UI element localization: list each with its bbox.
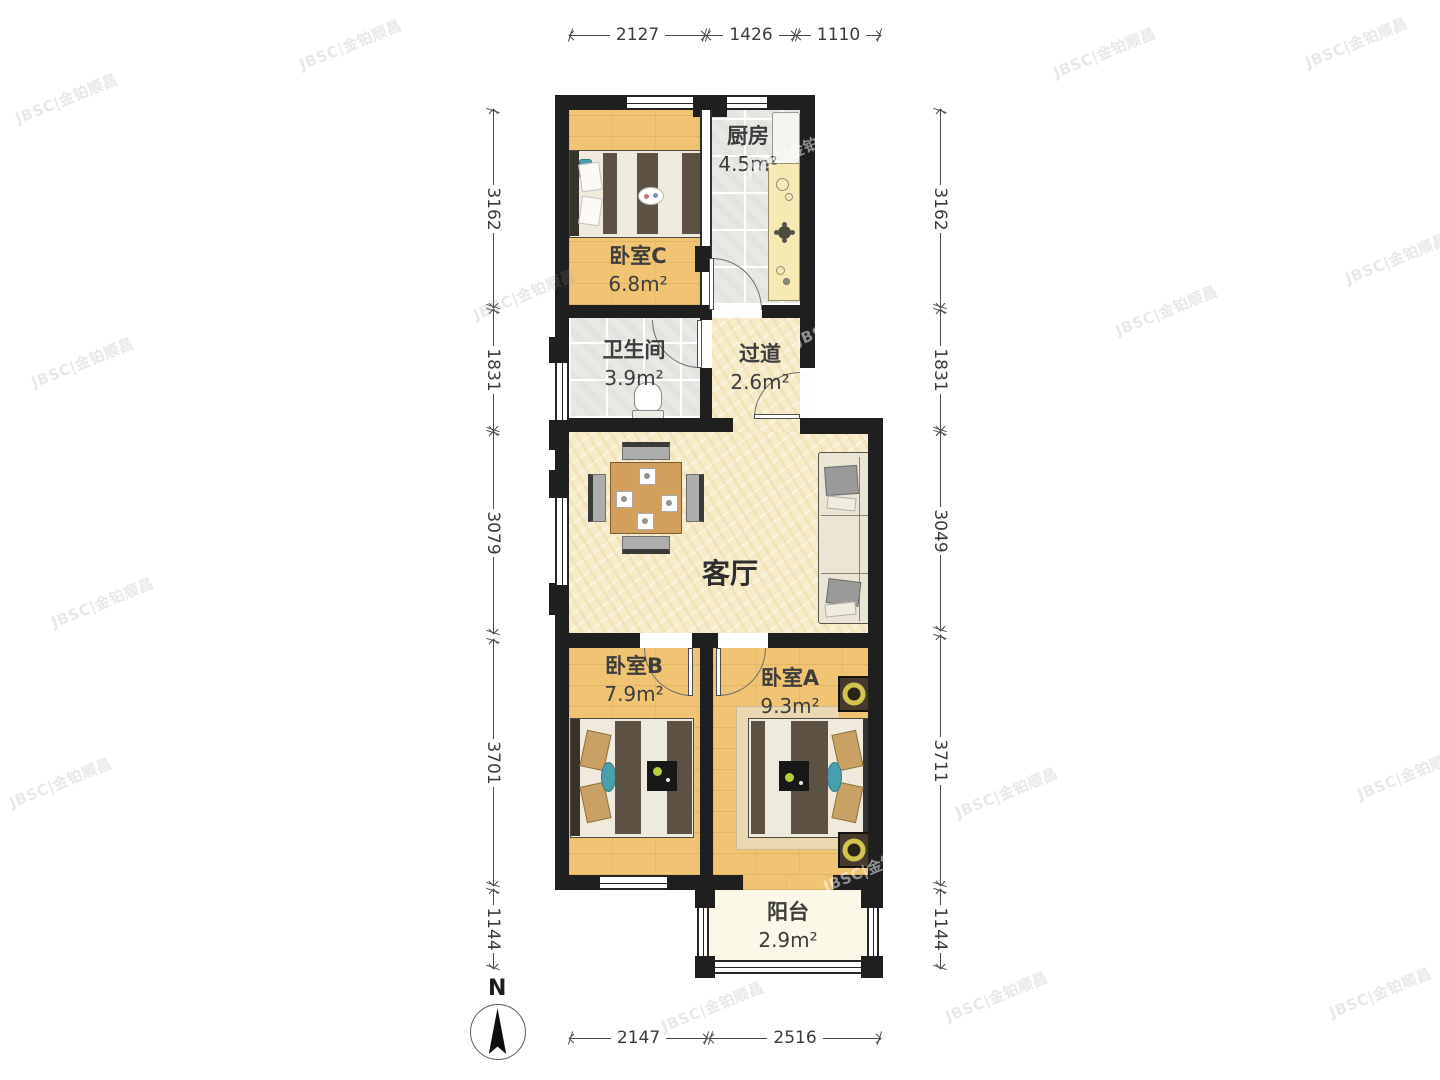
dimension-value: 3162 — [483, 187, 503, 230]
balcony-window — [697, 908, 709, 956]
room-name: 卧室C — [578, 242, 698, 270]
dimension-right-2: 1831 — [930, 310, 950, 430]
room-area: 3.9m² — [574, 364, 694, 392]
room-name: 客厅 — [660, 560, 800, 588]
dining-chair — [588, 474, 606, 522]
dimension-top-1: 2127 — [570, 25, 705, 45]
kitchen-counter — [768, 163, 800, 301]
dimension-left-2: 1831 — [483, 310, 503, 430]
wall-segment — [833, 875, 883, 890]
wall-pilaster — [549, 583, 569, 615]
sofa — [818, 452, 872, 624]
wall-segment — [555, 305, 712, 318]
room-area: 2.6m² — [712, 368, 808, 396]
dining-chair — [686, 474, 704, 522]
dining-table — [610, 462, 682, 534]
dimension-bottom-2: 2516 — [710, 1028, 880, 1048]
room-name: 过道 — [712, 340, 808, 368]
room-name: 卫生间 — [574, 336, 694, 364]
watermark: JBSC|金铂顺昌 — [1326, 962, 1435, 1022]
dimension-left-5: 1144 — [483, 890, 503, 968]
watermark: JBSC|金铂顺昌 — [6, 752, 115, 812]
room-area: 6.8m² — [578, 270, 698, 298]
wall-segment — [555, 875, 600, 890]
dimension-value: 1144 — [483, 907, 503, 950]
dimension-value: 1426 — [723, 25, 778, 45]
kitchen-door-leaf — [709, 258, 714, 310]
balcony-post — [861, 956, 883, 978]
dimension-value: 1110 — [811, 25, 866, 45]
wall-pilaster — [549, 337, 569, 363]
dimension-left-3: 3079 — [483, 432, 503, 633]
dimension-value: 3079 — [483, 511, 503, 554]
window — [555, 363, 569, 420]
dimension-right-1: 3162 — [930, 110, 950, 307]
wall-segment — [555, 585, 569, 890]
room-label-living: 客厅 — [660, 560, 800, 588]
floorplan-page: { "watermark": { "text": "JBSC|金铂顺昌" }, … — [0, 0, 1440, 1080]
room-area: 7.9m² — [574, 680, 694, 708]
dimension-value: 3701 — [483, 741, 503, 784]
watermark: JBSC|金铂顺昌 — [952, 762, 1061, 822]
room-label-kitchen: 厨房 4.5m² — [700, 122, 796, 178]
floor-plan: 厨房 4.5m² 卧室C 6.8m² 卫生间 3.9m² 过道 2.6m² 客厅… — [0, 0, 1440, 1080]
bed-bedroom-a — [748, 718, 874, 838]
compass-north-label: N — [488, 976, 506, 1001]
wall-segment — [692, 633, 718, 648]
room-name: 卧室B — [574, 652, 694, 680]
speaker — [838, 832, 870, 868]
wall-segment — [700, 648, 713, 875]
bedroom-a-door-leaf — [716, 648, 721, 696]
wall-segment — [555, 418, 733, 432]
entry-door-leaf — [754, 414, 800, 419]
dimension-right-5: 1144 — [930, 890, 950, 968]
room-label-hallway: 过道 2.6m² — [712, 340, 808, 396]
window — [600, 875, 667, 890]
room-label-balcony: 阳台 2.9m² — [728, 898, 848, 954]
dimension-left-4: 3701 — [483, 640, 503, 885]
watermark: JBSC|金铂顺昌 — [942, 966, 1051, 1026]
dimension-value: 1144 — [930, 907, 950, 950]
room-name: 阳台 — [728, 898, 848, 926]
wall-segment — [555, 95, 569, 363]
dimension-right-3: 3049 — [930, 432, 950, 630]
window — [727, 95, 767, 110]
balcony-window — [715, 960, 861, 974]
wall-segment — [762, 305, 815, 318]
dining-chair — [622, 536, 670, 554]
dimension-bottom-1: 2147 — [570, 1028, 707, 1048]
bed-bedroom-c — [569, 150, 703, 238]
dimension-right-4: 3711 — [930, 636, 950, 885]
balcony-door-threshold — [743, 875, 833, 890]
wall-pilaster — [549, 470, 569, 498]
bathroom-door-leaf — [697, 320, 702, 368]
dimension-value: 2147 — [611, 1028, 666, 1048]
room-label-bedroom-c: 卧室C 6.8m² — [578, 242, 698, 298]
watermark: JBSC|金铂顺昌 — [1112, 280, 1221, 340]
room-name: 厨房 — [700, 122, 796, 150]
balcony-post — [861, 890, 883, 908]
room-label-bathroom: 卫生间 3.9m² — [574, 336, 694, 392]
wall-segment — [800, 95, 815, 368]
wall-segment — [667, 875, 743, 890]
watermark: JBSC|金铂顺昌 — [28, 332, 137, 392]
room-name: 卧室A — [730, 664, 850, 692]
dimension-value: 1831 — [930, 348, 950, 391]
dining-chair — [622, 442, 670, 460]
wall-segment — [555, 633, 640, 648]
dimension-value: 1831 — [483, 348, 503, 391]
watermark: JBSC|金铂顺昌 — [1354, 744, 1440, 804]
room-label-bedroom-a: 卧室A 9.3m² — [730, 664, 850, 720]
watermark: JBSC|金铂顺昌 — [1302, 12, 1411, 72]
watermark: JBSC|金铂顺昌 — [1050, 22, 1159, 82]
dimension-value: 2516 — [767, 1028, 822, 1048]
room-area: 9.3m² — [730, 692, 850, 720]
dimension-value: 3711 — [930, 739, 950, 782]
wall-segment — [800, 418, 883, 434]
watermark: JBSC|金铂顺昌 — [1342, 228, 1440, 288]
dimension-value: 3162 — [930, 187, 950, 230]
dimension-value: 2127 — [610, 25, 665, 45]
dimension-top-2: 1426 — [707, 25, 795, 45]
bed-bedroom-b — [570, 718, 694, 838]
room-area: 4.5m² — [700, 150, 796, 178]
dimension-left-1: 3162 — [483, 110, 503, 307]
wall-segment — [768, 633, 883, 648]
balcony-post — [695, 956, 715, 978]
balcony-window — [867, 908, 879, 956]
watermark: JBSC|金铂顺昌 — [48, 572, 157, 632]
dimension-top-3: 1110 — [797, 25, 880, 45]
window — [555, 498, 569, 585]
dimension-value: 3049 — [930, 509, 950, 552]
room-area: 2.9m² — [728, 926, 848, 954]
watermark: JBSC|金铂顺昌 — [296, 14, 405, 74]
wall-segment — [868, 434, 883, 890]
watermark: JBSC|金铂顺昌 — [12, 68, 121, 128]
room-label-bedroom-b: 卧室B 7.9m² — [574, 652, 694, 708]
balcony-post — [695, 890, 715, 908]
window — [627, 95, 693, 110]
